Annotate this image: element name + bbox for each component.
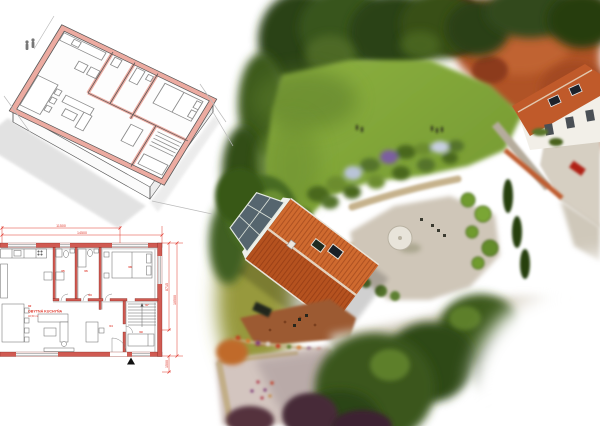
orange-shrub xyxy=(216,339,248,365)
room-number-room-small: 09 xyxy=(139,330,143,334)
room-number-stair: 07 xyxy=(145,303,149,307)
room-number-bath2: 06 xyxy=(84,269,88,273)
living-room-number: 02 xyxy=(28,304,32,308)
room-number-room-mid: 04 xyxy=(109,324,113,328)
plan-stairs xyxy=(128,303,156,327)
dim-right-outer: 10500 xyxy=(173,295,177,305)
living-room-name: OBYTNÁ KUCHYŇA xyxy=(28,309,63,314)
dim-right-inner: 8715 xyxy=(165,283,169,291)
entrance-marker xyxy=(127,358,135,365)
person-figures xyxy=(25,38,34,50)
dim-right-lower: 1500 xyxy=(165,360,169,368)
room-number-bath1: 05 xyxy=(61,269,65,273)
axonometric-drawing xyxy=(0,0,250,230)
room-number-hall: 03 xyxy=(88,293,92,297)
dim-top-inner: 11500 xyxy=(56,224,66,228)
floor-plan-drawing: 11500 14500 8715 10500 1500 xyxy=(0,222,195,426)
dim-top-outer: 14500 xyxy=(77,231,87,235)
living-room-area: 40,50 m² xyxy=(28,314,38,318)
room-number-bedroom: 08 xyxy=(128,265,132,269)
